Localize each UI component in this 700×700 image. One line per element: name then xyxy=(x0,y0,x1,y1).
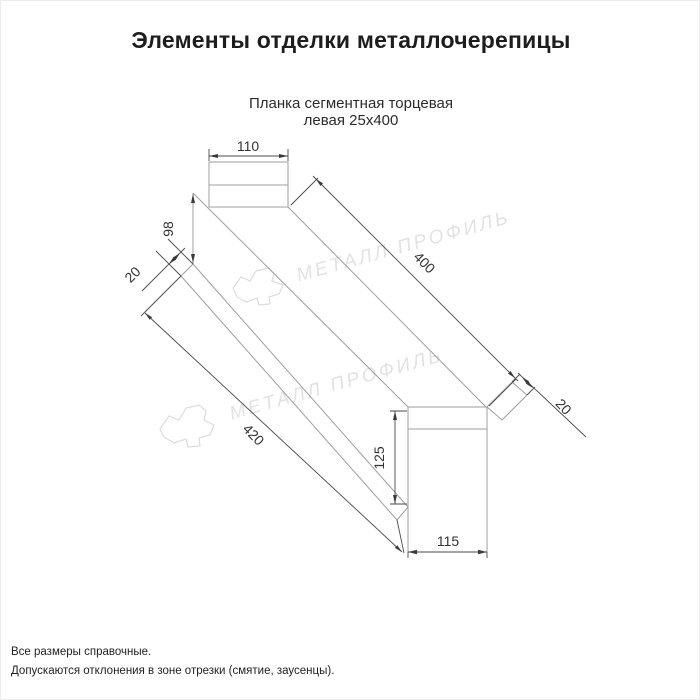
dimension-lines xyxy=(141,149,586,558)
technical-drawing: МЕТАЛЛ ПРОФИЛЬ МЕТАЛЛ ПРОФИЛЬ xyxy=(1,1,700,700)
dim-label-bottom-length: 420 xyxy=(240,421,268,449)
product-drawing-page: Элементы отделки металлочерепицы Планка … xyxy=(0,0,700,700)
footnote-line1: Все размеры справочные. xyxy=(11,643,334,662)
dim-label-far-width: 115 xyxy=(437,533,460,549)
footnote-line2: Допускаются отклонения в зоне отрезки (с… xyxy=(11,662,334,681)
dim-label-near-flange: 20 xyxy=(121,263,143,285)
watermark-text-lower: МЕТАЛЛ ПРОФИЛЬ xyxy=(227,345,445,424)
watermark-layer: МЕТАЛЛ ПРОФИЛЬ МЕТАЛЛ ПРОФИЛЬ xyxy=(160,207,513,447)
metall-profil-logo-icon xyxy=(160,405,214,447)
metall-profil-logo-icon xyxy=(233,268,283,305)
dim-label-far-flange: 20 xyxy=(552,395,574,417)
dimension-labels: 110 98 20 400 420 20 125 115 xyxy=(121,138,575,549)
dim-label-far-height: 125 xyxy=(371,446,387,470)
dim-label-top-width: 110 xyxy=(237,138,260,154)
footnotes: Все размеры справочные. Допускаются откл… xyxy=(11,643,334,681)
dimension-arrows xyxy=(145,154,533,554)
dim-label-near-height: 98 xyxy=(160,221,176,237)
